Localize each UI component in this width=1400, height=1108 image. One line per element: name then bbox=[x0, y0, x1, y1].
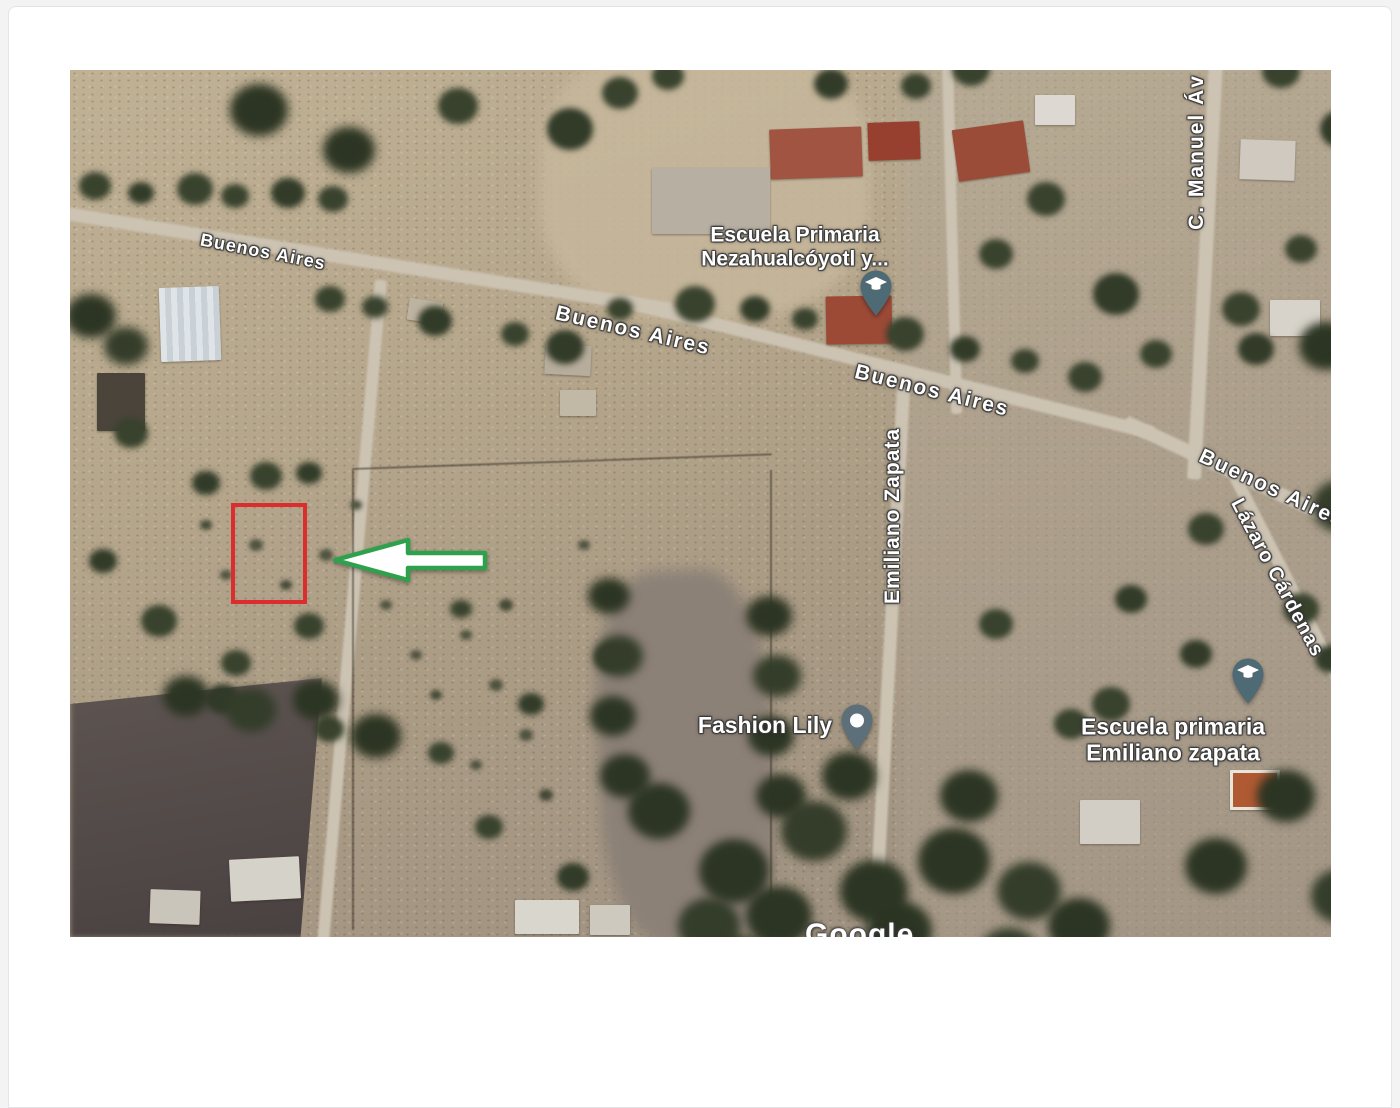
shrub-speckles bbox=[70, 70, 82, 80]
poi-label-escuela-nezahualcoyotl: Escuela Primaria Nezahualcóyotl y... bbox=[701, 223, 889, 270]
poi-label-line: Escuela Primaria bbox=[701, 223, 889, 247]
store-pin-icon[interactable] bbox=[839, 703, 875, 751]
building bbox=[544, 344, 592, 376]
building bbox=[1035, 95, 1075, 125]
poi-label-line: Escuela primaria bbox=[1081, 714, 1265, 740]
building bbox=[407, 298, 444, 325]
terrain-gray-lot bbox=[588, 566, 782, 937]
building bbox=[1230, 770, 1280, 810]
pointer-arrow bbox=[330, 537, 490, 583]
poi-label-line: Emiliano zapata bbox=[1081, 740, 1265, 766]
building bbox=[97, 373, 145, 431]
building bbox=[1080, 800, 1140, 844]
building bbox=[159, 286, 222, 362]
building bbox=[952, 120, 1031, 182]
street-label-c-manuel: C. Manuel Áv bbox=[1185, 74, 1209, 230]
building-school-roof bbox=[769, 126, 863, 179]
building bbox=[229, 856, 301, 902]
building bbox=[1239, 139, 1295, 181]
school-pin-icon[interactable] bbox=[858, 269, 894, 317]
google-watermark: Google bbox=[805, 918, 914, 937]
building-school-roof bbox=[867, 121, 920, 161]
poi-label-line: Nezahualcóyotl y... bbox=[701, 247, 889, 271]
building bbox=[590, 905, 630, 935]
street-label-emiliano-zapata: Emiliano Zapata bbox=[881, 428, 905, 604]
fence-line bbox=[770, 470, 772, 937]
building bbox=[149, 889, 200, 925]
school-pin-icon[interactable] bbox=[1230, 657, 1266, 705]
highlight-box bbox=[229, 501, 309, 606]
building bbox=[1270, 300, 1320, 336]
satellite-map[interactable]: Buenos Aires Buenos Aires Buenos Aires B… bbox=[70, 70, 1331, 937]
poi-label-fashion-lily: Fashion Lily bbox=[698, 713, 832, 739]
building bbox=[515, 900, 579, 934]
building bbox=[560, 390, 596, 416]
poi-label-escuela-emiliano-zapata: Escuela primaria Emiliano zapata bbox=[1081, 714, 1265, 766]
